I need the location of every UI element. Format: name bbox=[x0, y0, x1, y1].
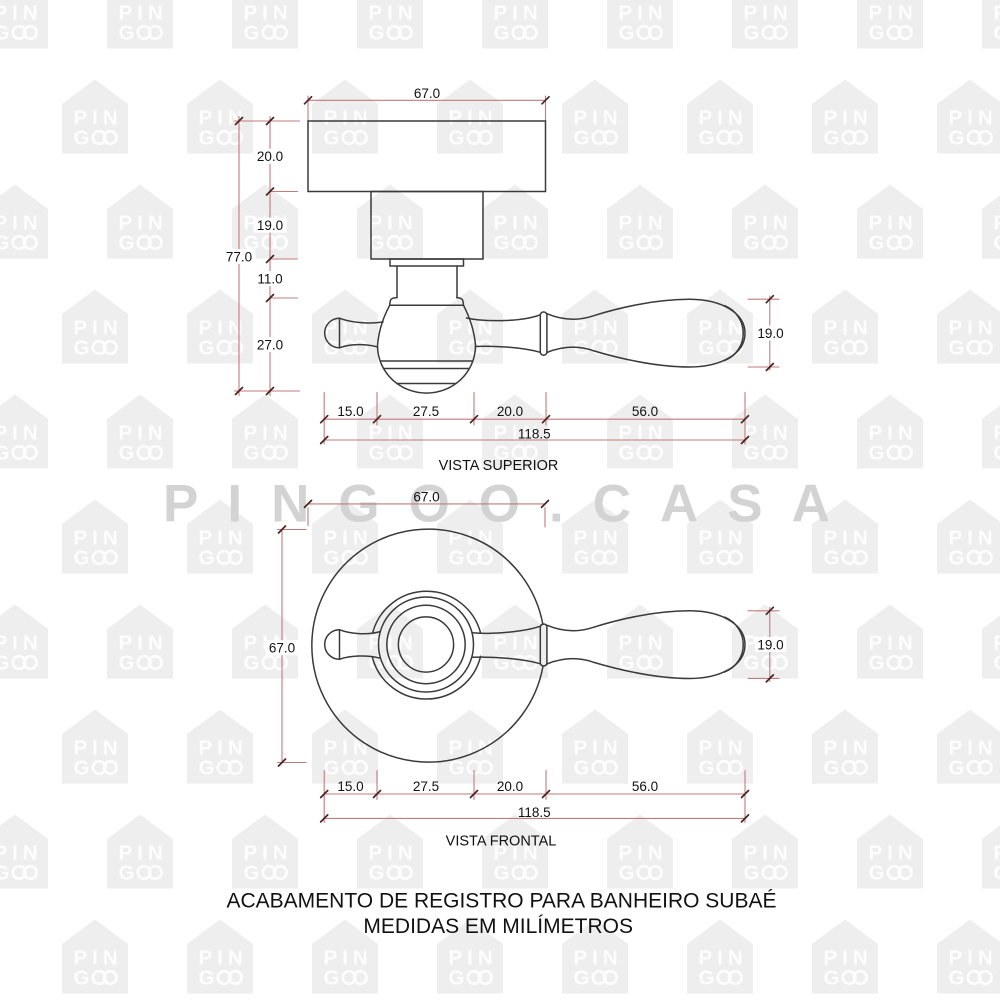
svg-text:19.0: 19.0 bbox=[257, 218, 283, 233]
svg-text:27.0: 27.0 bbox=[257, 337, 283, 352]
svg-text:19.0: 19.0 bbox=[757, 326, 783, 341]
svg-text:VISTA FRONTAL: VISTA FRONTAL bbox=[446, 834, 557, 850]
svg-text:67.0: 67.0 bbox=[414, 86, 440, 101]
svg-text:19.0: 19.0 bbox=[757, 637, 783, 652]
svg-text:15.0: 15.0 bbox=[337, 404, 363, 419]
svg-text:VISTA SUPERIOR: VISTA SUPERIOR bbox=[439, 458, 559, 474]
svg-text:56.0: 56.0 bbox=[632, 404, 658, 419]
svg-text:27.5: 27.5 bbox=[413, 779, 439, 794]
svg-text:MEDIDAS EM MILÍMETROS: MEDIDAS EM MILÍMETROS bbox=[363, 915, 633, 938]
svg-text:11.0: 11.0 bbox=[257, 271, 282, 286]
svg-text:118.5: 118.5 bbox=[518, 805, 551, 820]
svg-text:ACABAMENTO DE REGISTRO PARA BA: ACABAMENTO DE REGISTRO PARA BANHEIRO SUB… bbox=[226, 890, 776, 913]
svg-text:118.5: 118.5 bbox=[518, 427, 551, 442]
svg-text:67.0: 67.0 bbox=[269, 641, 295, 656]
svg-text:27.5: 27.5 bbox=[413, 404, 439, 419]
svg-text:56.0: 56.0 bbox=[632, 779, 658, 794]
svg-text:77.0: 77.0 bbox=[226, 249, 252, 264]
svg-text:20.0: 20.0 bbox=[497, 779, 523, 794]
svg-text:67.0: 67.0 bbox=[413, 489, 439, 504]
svg-text:20.0: 20.0 bbox=[257, 149, 283, 164]
svg-text:20.0: 20.0 bbox=[497, 404, 523, 419]
svg-text:15.0: 15.0 bbox=[337, 779, 363, 794]
